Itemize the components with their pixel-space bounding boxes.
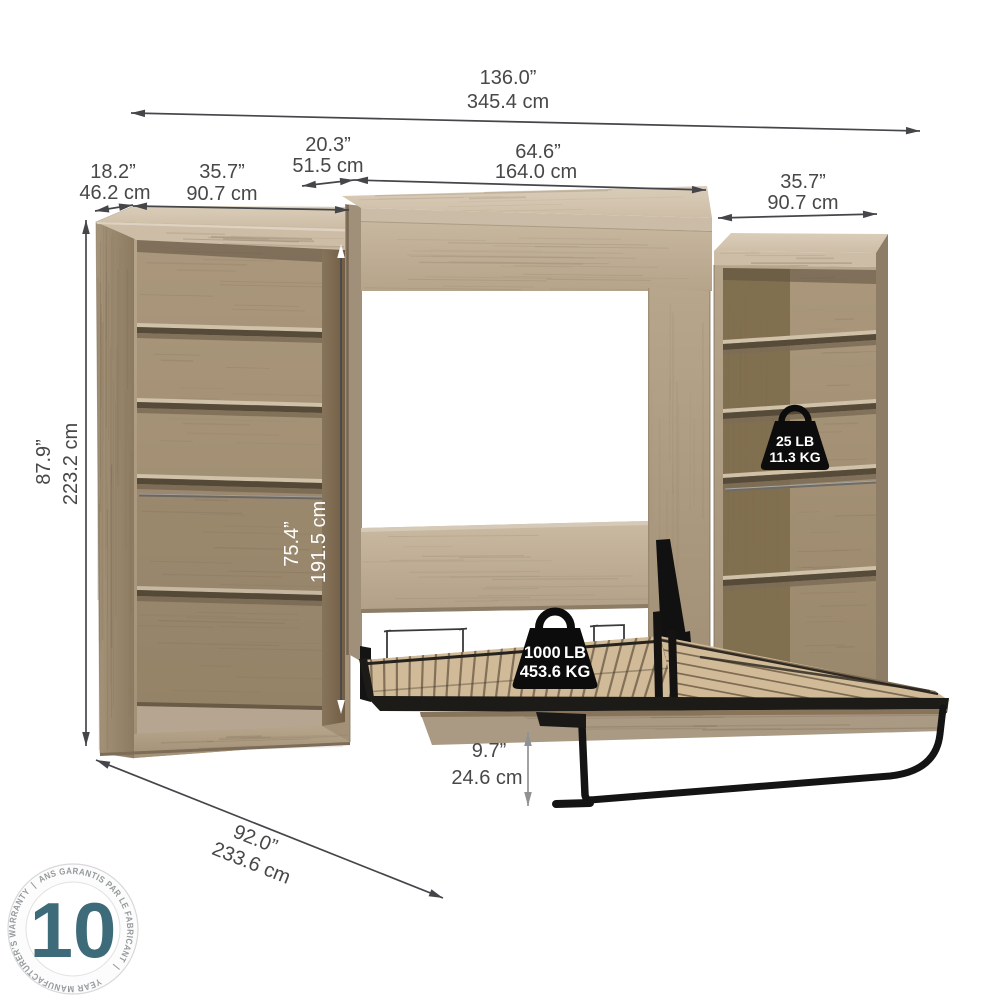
svg-text:136.0”: 136.0” xyxy=(480,67,537,89)
svg-text:10: 10 xyxy=(30,886,117,974)
svg-text:1000 LB: 1000 LB xyxy=(524,644,586,662)
svg-text:164.0 cm: 164.0 cm xyxy=(495,161,577,183)
svg-text:35.7”: 35.7” xyxy=(780,171,826,193)
svg-text:35.7”: 35.7” xyxy=(199,161,245,183)
svg-text:25 LB: 25 LB xyxy=(776,433,814,449)
svg-text:223.2 cm: 223.2 cm xyxy=(60,423,82,505)
svg-text:51.5 cm: 51.5 cm xyxy=(292,155,363,177)
svg-text:345.4 cm: 345.4 cm xyxy=(467,91,549,113)
svg-text:75.4”: 75.4” xyxy=(281,521,303,567)
svg-text:64.6”: 64.6” xyxy=(515,141,561,163)
svg-text:90.7 cm: 90.7 cm xyxy=(186,183,257,205)
svg-text:90.7 cm: 90.7 cm xyxy=(767,192,838,214)
svg-text:9.7”: 9.7” xyxy=(472,740,506,762)
svg-text:24.6 cm: 24.6 cm xyxy=(451,767,522,789)
svg-text:20.3”: 20.3” xyxy=(305,134,351,156)
svg-text:18.2”: 18.2” xyxy=(90,161,136,183)
svg-text:191.5 cm: 191.5 cm xyxy=(308,501,330,583)
svg-text:46.2 cm: 46.2 cm xyxy=(79,182,150,204)
svg-text:87.9”: 87.9” xyxy=(33,439,55,485)
svg-text:11.3 KG: 11.3 KG xyxy=(769,449,820,465)
svg-text:453.6 KG: 453.6 KG xyxy=(520,663,591,681)
